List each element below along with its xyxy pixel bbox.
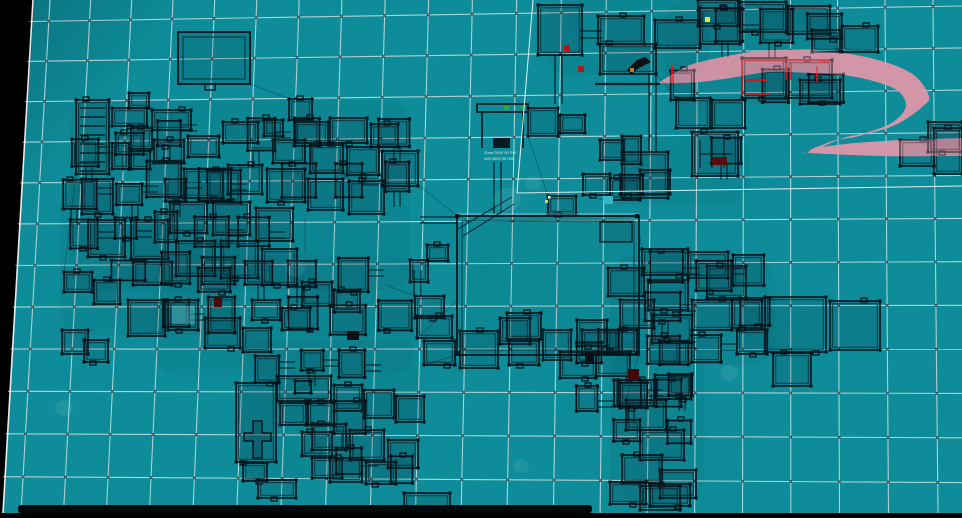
svg-text:Zone 0000 00 PM: Zone 0000 00 PM [484, 150, 516, 155]
svg-text:000 0000 00 000: 000 0000 00 000 [484, 156, 515, 161]
